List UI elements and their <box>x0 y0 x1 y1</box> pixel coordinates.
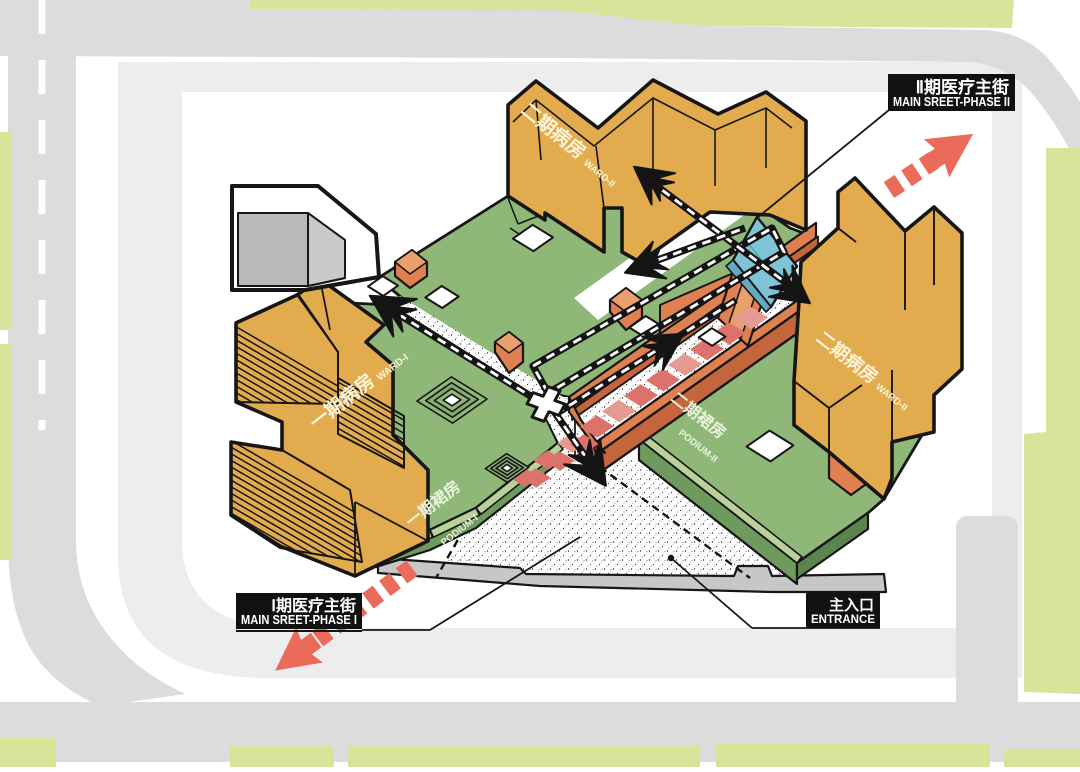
svg-text:ENTRANCE: ENTRANCE <box>811 612 875 626</box>
svg-text:MAIN SREET-PHASE I: MAIN SREET-PHASE I <box>241 613 357 627</box>
svg-text:MAIN SREET-PHASE II: MAIN SREET-PHASE II <box>893 94 1010 109</box>
